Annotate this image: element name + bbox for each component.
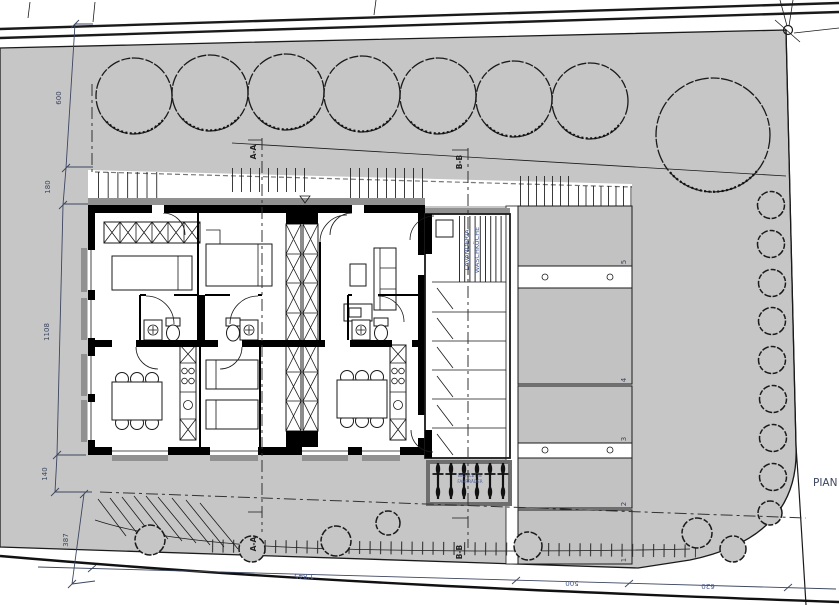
dining-table xyxy=(337,380,387,418)
dim-600-label: 600 xyxy=(55,91,63,104)
parking-lane xyxy=(518,443,632,458)
dim-180-label: 180 xyxy=(44,180,52,193)
dining-set xyxy=(337,371,387,428)
kitchen-strip xyxy=(180,345,196,440)
parking-stall-4 xyxy=(518,288,632,384)
parking-lane xyxy=(518,266,632,288)
bush-icon xyxy=(758,231,785,258)
bush-icon xyxy=(759,347,786,374)
dining-set xyxy=(112,373,162,430)
laundry-label-it: LAVANDERIA xyxy=(463,229,471,271)
bush-icon xyxy=(759,308,786,335)
bike-label-line1: BICICLETTE xyxy=(458,473,482,478)
dim-140-label: 140 xyxy=(41,467,49,480)
bush-icon xyxy=(760,425,787,452)
bed xyxy=(112,256,192,290)
stall-number-2: 2 xyxy=(620,502,628,506)
bike-label-line2: FAHRRÄDER xyxy=(457,479,482,484)
bed xyxy=(206,360,258,389)
stall-number-5: 5 xyxy=(620,260,628,264)
washing-machine-icon xyxy=(436,220,453,237)
bush-icon xyxy=(514,532,542,560)
bush-icon xyxy=(682,518,712,548)
bath-divider-wall xyxy=(197,295,205,340)
section-label-bb-bottom: B-B xyxy=(455,544,464,559)
bush-icon xyxy=(720,536,746,562)
dim-620-label: 620 xyxy=(701,582,714,590)
coffee-table xyxy=(350,264,366,286)
bush-icon xyxy=(758,501,782,525)
dim-1845-label: 1'845 xyxy=(294,572,314,580)
bush-column-right xyxy=(758,192,787,526)
stall-number-4: 4 xyxy=(620,377,628,382)
bike-rack: BICICLETTE FAHRRÄDER xyxy=(428,462,510,504)
annex: LAVANDERIA WASCHKÜCHE xyxy=(410,208,510,458)
parking-stall-2 xyxy=(518,458,632,508)
stall-number-1: 1 xyxy=(620,558,628,562)
section-label-bb-top: B-B xyxy=(455,154,464,169)
bush-icon xyxy=(760,464,787,491)
sill-band xyxy=(88,198,425,205)
dim-1108-label: 1108 xyxy=(43,323,51,341)
dining-table xyxy=(112,382,162,420)
site-plan-sheet: 5 4 3 2 1 xyxy=(0,0,839,605)
parking-stall-3 xyxy=(518,386,632,443)
parking-stall-5 xyxy=(518,206,632,266)
building xyxy=(81,205,425,461)
stall-number-3: 3 xyxy=(620,437,628,441)
section-label-aa-bottom: A-A xyxy=(249,536,258,551)
laundry-label-de: WASCHKÜCHE xyxy=(472,227,481,273)
tv-icon xyxy=(349,308,361,317)
bush-icon xyxy=(135,525,165,555)
sheet-title-partial: PIAN xyxy=(813,477,837,489)
kitchen-strip xyxy=(390,345,406,440)
dim-387-label: 387 xyxy=(62,533,70,546)
bed xyxy=(206,400,258,429)
bush-icon xyxy=(759,270,786,297)
section-label-aa-top: A-A xyxy=(249,144,258,159)
bush-icon xyxy=(760,386,787,413)
dim-500-label: 500 xyxy=(565,579,578,587)
bush-icon xyxy=(321,526,351,556)
bush-icon xyxy=(758,192,785,219)
street-edge-line xyxy=(0,556,839,602)
bush-icon xyxy=(376,511,400,535)
plan-drawing: 5 4 3 2 1 xyxy=(0,0,839,605)
